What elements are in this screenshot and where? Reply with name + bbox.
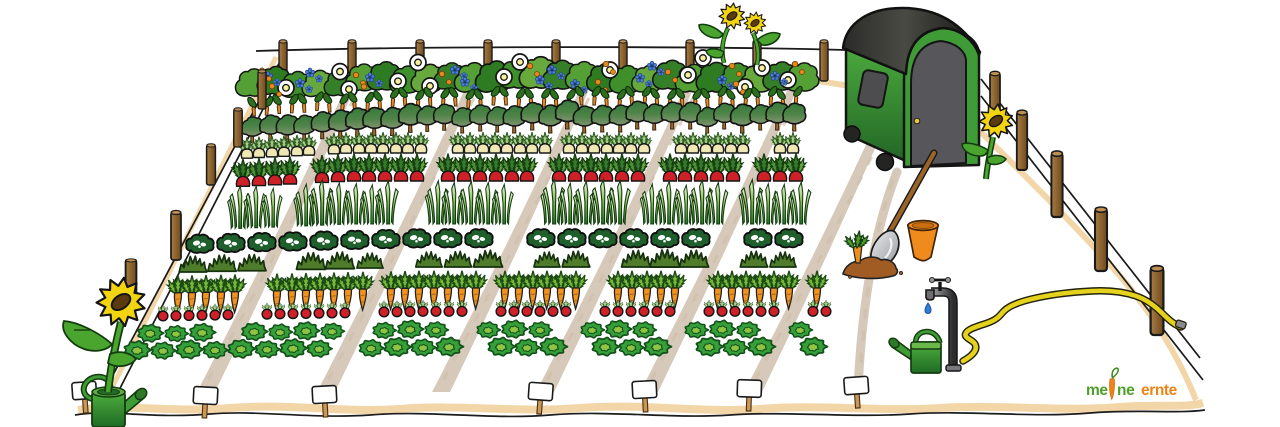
svg-text:ne: ne [1117,382,1135,399]
svg-text:me: me [1086,382,1108,399]
svg-text:ernte: ernte [1141,382,1178,399]
